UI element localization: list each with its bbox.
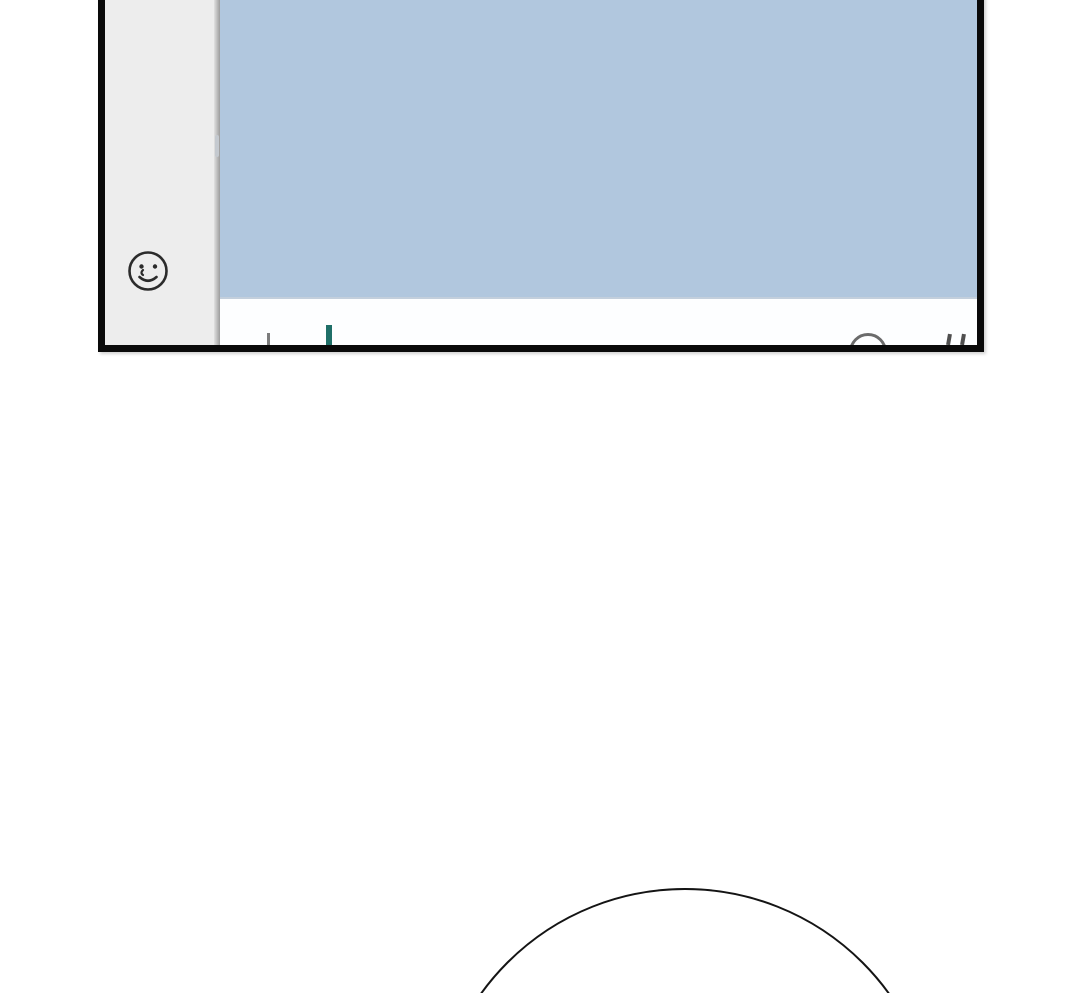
background-circle xyxy=(433,888,937,993)
hash-icon xyxy=(943,334,975,345)
teal-cursor-tick xyxy=(326,325,332,345)
window-content xyxy=(105,0,977,345)
page-background xyxy=(0,0,1080,993)
divider-scroll-thumb[interactable] xyxy=(215,135,219,157)
chat-content-area xyxy=(220,0,977,299)
sidebar-panel xyxy=(105,0,214,345)
text-cursor-tick xyxy=(267,333,270,345)
hash-stroke xyxy=(960,334,966,345)
app-window xyxy=(98,0,984,352)
hash-stroke xyxy=(946,334,952,345)
smiley-face-icon[interactable] xyxy=(127,250,169,292)
